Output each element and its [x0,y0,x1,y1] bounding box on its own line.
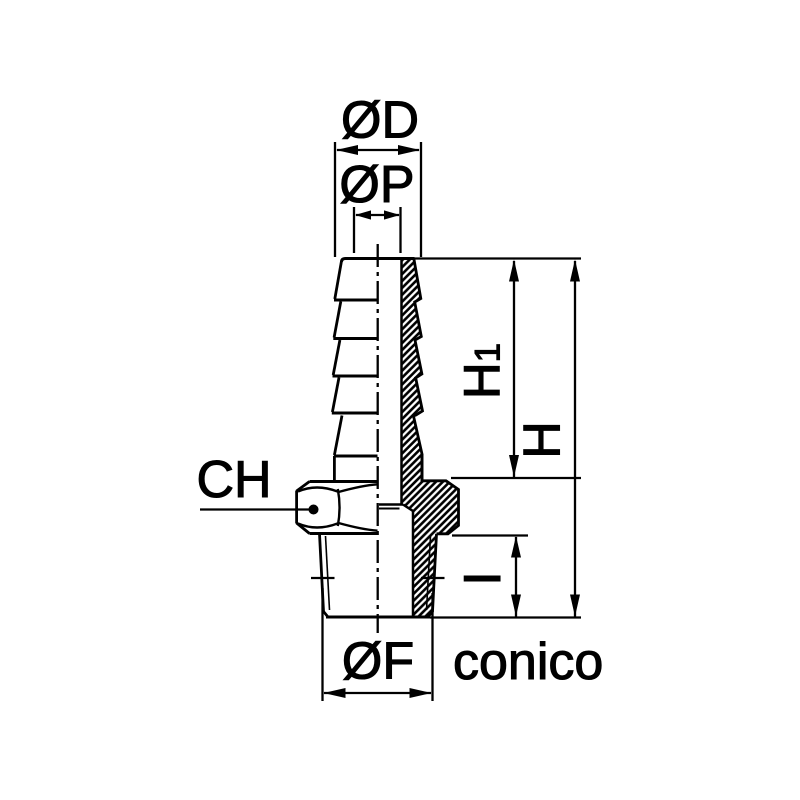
svg-text:ØP: ØP [339,156,414,214]
svg-text:CH: CH [196,451,271,509]
svg-text:ØD: ØD [341,92,419,150]
svg-text:H: H [514,421,572,459]
svg-text:conico: conico [453,633,603,691]
svg-text:I: I [454,571,512,585]
svg-text:ØF: ØF [342,633,414,691]
